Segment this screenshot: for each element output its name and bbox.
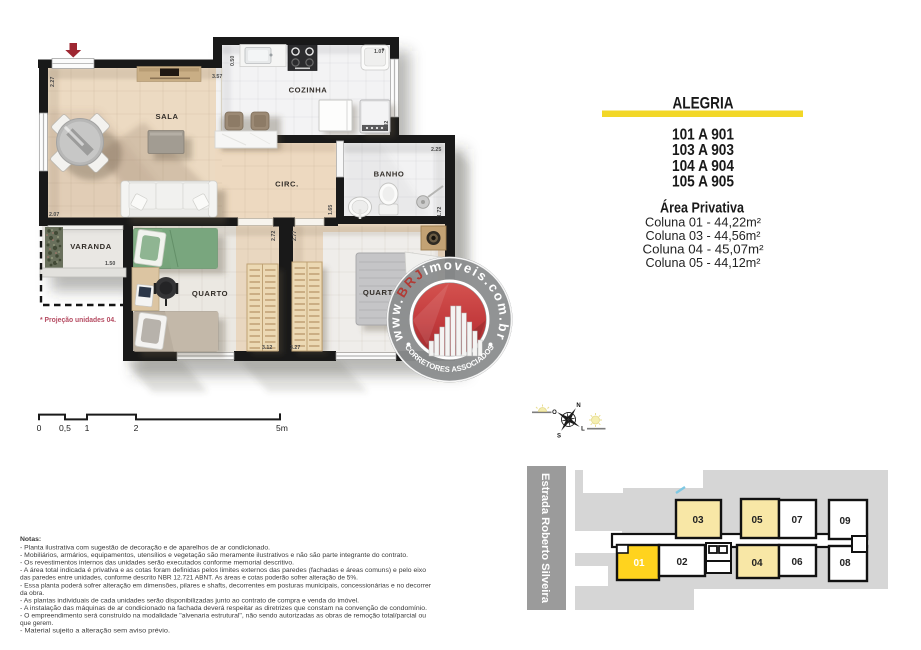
svg-text:105 A 905: 105 A 905 [672,174,734,191]
svg-text:CIRC.: CIRC. [275,180,299,189]
svg-text:2: 2 [134,423,139,433]
svg-text:05: 05 [751,515,763,526]
svg-text:07: 07 [791,515,803,526]
svg-text:0.50: 0.50 [230,56,236,66]
svg-text:- Os revestimentos internos da: - Os revestimentos internos das unidades… [20,560,294,567]
svg-text:- A instalação das máquinas de: - A instalação das máquinas de ar condic… [20,605,427,612]
svg-text:que gerem.: que gerem. [20,620,54,627]
svg-text:01: 01 [633,558,645,569]
svg-text:03: 03 [692,515,704,526]
svg-text:2.02: 2.02 [384,121,390,131]
svg-text:2.27: 2.27 [50,77,56,87]
svg-text:- As plantas individuais de ca: - As plantas individuais de cada unidade… [20,597,359,604]
svg-text:3.57: 3.57 [212,74,222,80]
svg-text:Estrada Roberto Silveira: Estrada Roberto Silveira [539,473,551,604]
svg-text:N: N [576,403,580,409]
svg-text:0,5: 0,5 [59,423,71,433]
svg-text:06: 06 [791,557,803,568]
svg-text:09: 09 [839,516,851,527]
svg-text:0: 0 [37,423,42,433]
svg-text:COZINHA: COZINHA [289,86,328,95]
svg-text:QUARTO: QUARTO [192,289,228,298]
svg-text:2.07: 2.07 [49,212,59,218]
svg-text:101 A 901: 101 A 901 [672,127,734,144]
svg-text:1.65: 1.65 [328,205,334,215]
svg-text:SALA: SALA [155,112,178,121]
svg-text:5m: 5m [276,423,288,433]
svg-text:das paredes entre unidades, co: das paredes entre unidades, conforme des… [20,575,358,582]
svg-text:- Mobiliários, armários, equip: - Mobiliários, armários, equipamentos, u… [20,552,408,559]
svg-text:104 A 904: 104 A 904 [672,158,734,175]
svg-text:04: 04 [751,558,763,569]
svg-text:2.77: 2.77 [292,231,298,241]
svg-text:1.07: 1.07 [374,49,384,55]
svg-text:- A área total indicada é priv: - A área total indicada é privativa e as… [20,567,426,574]
svg-text:ALEGRIA: ALEGRIA [673,95,734,113]
svg-text:Notas:: Notas: [20,536,41,543]
svg-text:1.72: 1.72 [437,207,443,217]
svg-text:da obra.: da obra. [20,590,44,597]
svg-text:103 A 903: 103 A 903 [672,142,734,159]
svg-text:- Material sujeito a alteração: - Material sujeito a alteração sem aviso… [20,628,170,635]
svg-text:02: 02 [676,557,688,568]
svg-text:- Essa planta poderá sofrer al: - Essa planta poderá sofrer alteração em… [20,582,432,589]
svg-text:1: 1 [85,423,90,433]
svg-text:VARANDA: VARANDA [70,242,112,251]
svg-text:- O empreendimento será constr: - O empreendimento será construído na mo… [20,613,426,620]
svg-text:08: 08 [839,558,851,569]
svg-text:L: L [581,427,585,433]
svg-text:3.12: 3.12 [262,345,272,351]
svg-text:Coluna 05 - 44,12m²: Coluna 05 - 44,12m² [646,255,762,270]
svg-text:O: O [552,410,557,416]
svg-text:2.72: 2.72 [271,231,277,241]
svg-text:1.50: 1.50 [105,261,115,267]
svg-text:S: S [557,434,561,440]
svg-text:- Planta ilustrativa com suges: - Planta ilustrativa com sugestão de dec… [20,545,270,552]
svg-text:2.25: 2.25 [431,147,441,153]
svg-text:3.27: 3.27 [290,345,300,351]
svg-text:* Projeção unidades 04.: * Projeção unidades 04. [40,315,116,324]
svg-text:BANHO: BANHO [374,170,405,179]
